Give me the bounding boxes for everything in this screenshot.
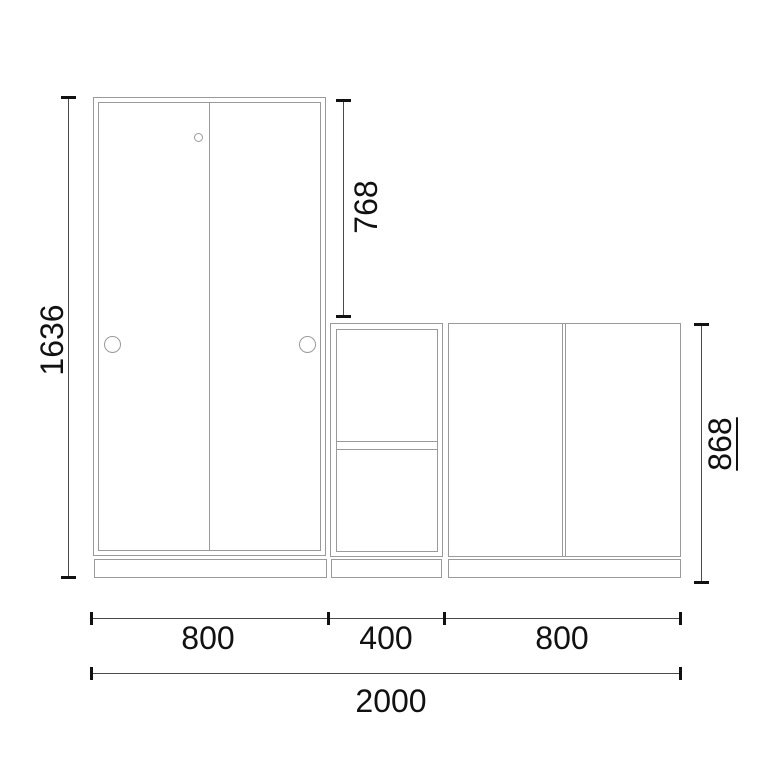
shelf-unit-plinth bbox=[331, 559, 442, 578]
dimension-tick bbox=[679, 667, 682, 680]
dimension-label-1636: 1636 bbox=[36, 304, 68, 375]
dimension-tick bbox=[679, 612, 682, 625]
furniture-dimension-diagram: 1636 768 868 800 400 800 2000 bbox=[0, 0, 770, 770]
dimension-label-768: 768 bbox=[350, 180, 382, 233]
dimension-end-cap bbox=[336, 99, 351, 102]
dimension-line bbox=[343, 100, 344, 318]
dimension-label-wardrobe-width: 800 bbox=[181, 622, 234, 654]
dimension-tick bbox=[90, 667, 93, 680]
cabinet-door-divider bbox=[562, 324, 566, 556]
wardrobe-right-door-handle-icon bbox=[299, 336, 316, 353]
shelf-unit-shelf bbox=[337, 441, 437, 450]
dimension-line bbox=[92, 618, 681, 619]
wardrobe-left-door-handle-icon bbox=[104, 336, 121, 353]
dimension-label-shelf-unit-width: 400 bbox=[359, 622, 412, 654]
dimension-line bbox=[92, 673, 681, 674]
dimension-label-total-width: 2000 bbox=[355, 685, 426, 717]
dimension-end-cap bbox=[61, 96, 76, 99]
dimension-end-cap bbox=[694, 581, 709, 584]
dimension-tick bbox=[327, 612, 330, 625]
wardrobe-plinth bbox=[94, 559, 327, 578]
wardrobe-lock-icon bbox=[194, 133, 203, 142]
wardrobe-door-divider bbox=[209, 103, 210, 550]
dimension-end-cap bbox=[694, 323, 709, 326]
dimension-end-cap bbox=[61, 576, 76, 579]
dimension-tick bbox=[90, 612, 93, 625]
dimension-end-cap bbox=[336, 315, 351, 318]
dimension-label-cabinet-width: 800 bbox=[535, 622, 588, 654]
cabinet-plinth bbox=[448, 559, 681, 578]
dimension-tick bbox=[443, 612, 446, 625]
dimension-label-868: 868 bbox=[704, 417, 736, 470]
